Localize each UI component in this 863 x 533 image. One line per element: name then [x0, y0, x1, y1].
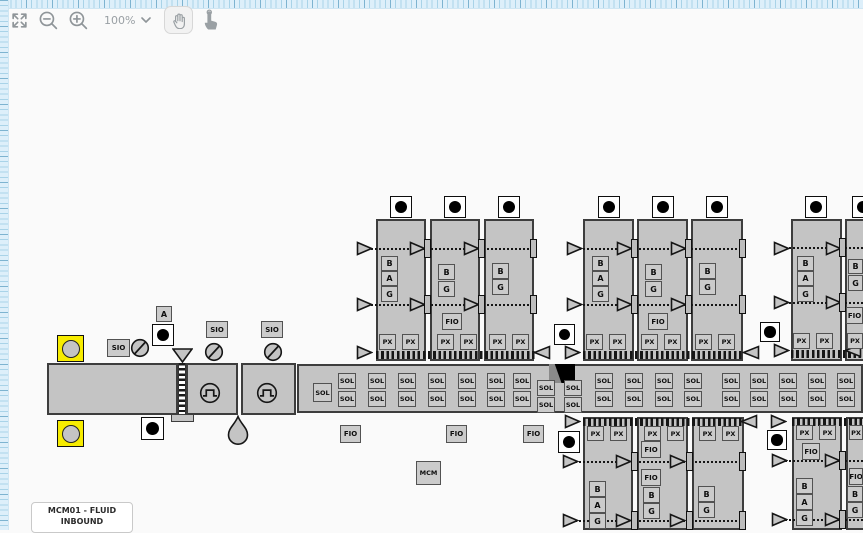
- sol-box[interactable]: SOL: [398, 373, 416, 389]
- pipe-flange: [739, 511, 746, 530]
- flow-line-dense: [376, 351, 535, 359]
- zoom-level-value: 100%: [104, 14, 135, 27]
- b-box[interactable]: B: [699, 263, 716, 279]
- module-title-line2: INBOUND: [36, 517, 128, 528]
- manual-valve[interactable]: [130, 338, 150, 358]
- flow-arrow-left[interactable]: [742, 345, 760, 360]
- flow-arrow-left[interactable]: [740, 414, 758, 429]
- zoom-out-button[interactable]: [38, 10, 59, 31]
- flow-arrow-right[interactable]: [356, 297, 373, 312]
- zoom-in-icon: [68, 10, 89, 31]
- alarm-indicator[interactable]: [57, 420, 84, 447]
- sol-box[interactable]: SOL: [513, 391, 531, 407]
- indicator-lamp[interactable]: [706, 196, 728, 218]
- expand-arrows-icon: [10, 11, 29, 30]
- fio-box[interactable]: FIO: [641, 441, 661, 458]
- lamp-dot-icon: [657, 201, 669, 213]
- b-box[interactable]: B: [848, 259, 863, 274]
- pointer-finger-icon: [202, 9, 219, 31]
- fio-box[interactable]: FIO: [523, 425, 544, 443]
- flow-arrow-right[interactable]: [615, 513, 632, 528]
- flow-arrow-right[interactable]: [771, 512, 788, 527]
- lamp-dot-icon: [503, 201, 515, 213]
- indicator-lamp[interactable]: [558, 431, 580, 453]
- lamp-dot-icon: [449, 201, 461, 213]
- lamp-dot-icon: [146, 422, 159, 435]
- module-title-line1: MCM01 - FLUID: [36, 506, 128, 517]
- lamp-circle-icon: [62, 340, 80, 358]
- pipe-flange: [739, 239, 746, 258]
- flow-line: [360, 248, 532, 250]
- px-box[interactable]: PX: [796, 425, 813, 440]
- flow-arrow-left[interactable]: [533, 345, 551, 360]
- pipe-flange: [739, 452, 746, 471]
- fio-box[interactable]: FIO: [641, 469, 661, 486]
- flow-arrow-right[interactable]: [770, 414, 787, 429]
- sol-box[interactable]: SOL: [428, 391, 446, 407]
- sol-box[interactable]: SOL: [428, 373, 446, 389]
- flow-line: [360, 304, 532, 306]
- px-box[interactable]: PX: [667, 426, 684, 441]
- sol-box[interactable]: SOL: [750, 391, 768, 407]
- px-box[interactable]: PX: [379, 334, 396, 350]
- lamp-dot-icon: [810, 201, 822, 213]
- sol-box[interactable]: SOL: [513, 373, 531, 389]
- indicator-lamp[interactable]: [152, 324, 174, 346]
- sol-box[interactable]: SOL: [808, 373, 826, 389]
- lamp-dot-icon: [395, 201, 407, 213]
- indicator-lamp[interactable]: [760, 322, 780, 342]
- pipe-flange: [631, 452, 638, 471]
- sol-box[interactable]: SOL: [837, 391, 855, 407]
- sol-box[interactable]: SOL: [458, 391, 476, 407]
- flow-arrow-right[interactable]: [356, 241, 373, 256]
- g-box[interactable]: G: [645, 281, 662, 297]
- b-box[interactable]: B: [592, 256, 609, 271]
- pipe-flange: [478, 295, 485, 314]
- sol-box[interactable]: SOL: [722, 391, 740, 407]
- flow-line: [568, 248, 741, 250]
- g-box[interactable]: G: [589, 513, 606, 529]
- flow-line: [566, 461, 741, 463]
- px-box[interactable]: PX: [722, 426, 739, 441]
- lamp-dot-icon: [559, 329, 571, 341]
- lamp-dot-icon: [603, 201, 615, 213]
- a-box[interactable]: A: [156, 306, 172, 322]
- lamp-dot-icon: [711, 201, 723, 213]
- fio-box[interactable]: FIO: [340, 425, 361, 443]
- pipe-flange: [839, 238, 846, 257]
- flow-arrow-right[interactable]: [669, 513, 686, 528]
- a-box[interactable]: A: [381, 271, 398, 286]
- px-box[interactable]: PX: [586, 334, 603, 350]
- g-box[interactable]: G: [643, 503, 660, 519]
- g-box[interactable]: G: [492, 279, 509, 295]
- diagram-canvas[interactable]: SIOSIOSIOAFIOFIOFIOMCMBAGPXPXBGFIOPXPXBG…: [0, 0, 863, 530]
- manual-valve[interactable]: [204, 342, 224, 362]
- pipe-flange: [839, 510, 846, 529]
- g-box[interactable]: G: [698, 502, 715, 518]
- fio-box[interactable]: FIO: [446, 425, 467, 443]
- indicator-lamp[interactable]: [141, 417, 164, 440]
- g-box[interactable]: G: [592, 286, 609, 302]
- hand-icon: [171, 12, 187, 29]
- sio-box[interactable]: SIO: [261, 321, 283, 338]
- indicator-lamp[interactable]: [805, 196, 827, 218]
- sol-box[interactable]: SOL: [313, 383, 332, 402]
- px-box[interactable]: PX: [437, 334, 454, 350]
- sol-box[interactable]: SOL: [808, 391, 826, 407]
- px-box[interactable]: PX: [512, 334, 529, 350]
- px-box[interactable]: PX: [718, 334, 735, 350]
- b-box[interactable]: B: [847, 486, 863, 502]
- indicator-lamp[interactable]: [390, 196, 412, 218]
- b-box[interactable]: B: [698, 486, 715, 502]
- indicator-lamp[interactable]: [598, 196, 620, 218]
- sol-box[interactable]: SOL: [487, 373, 505, 389]
- sol-box[interactable]: SOL: [564, 380, 582, 396]
- pipe-flange: [530, 239, 537, 258]
- inbound-tank[interactable]: [47, 363, 178, 415]
- gate-zipper: [178, 363, 186, 416]
- lamp-dot-icon: [563, 436, 575, 448]
- flow-arrow-right[interactable]: [773, 295, 790, 310]
- sol-box[interactable]: SOL: [338, 391, 356, 407]
- sol-box[interactable]: SOL: [487, 391, 505, 407]
- px-box[interactable]: PX: [816, 333, 833, 349]
- sol-box[interactable]: SOL: [750, 373, 768, 389]
- sol-box[interactable]: SOL: [779, 373, 797, 389]
- pump-symbol[interactable]: [199, 382, 221, 404]
- px-box[interactable]: PX: [664, 334, 681, 350]
- lamp-dot-icon: [857, 201, 863, 213]
- indicator-lamp[interactable]: [852, 196, 863, 218]
- flow-arrow-right[interactable]: [562, 454, 579, 469]
- zoom-out-icon: [38, 10, 59, 31]
- sol-box[interactable]: SOL: [595, 373, 613, 389]
- px-box[interactable]: PX: [699, 426, 716, 441]
- g-box[interactable]: G: [796, 510, 813, 526]
- b-box[interactable]: B: [492, 263, 509, 279]
- sol-box[interactable]: SOL: [684, 391, 702, 407]
- g-box[interactable]: G: [848, 275, 863, 291]
- a-box[interactable]: A: [589, 497, 606, 513]
- canvas-toolbar: 100%: [10, 6, 219, 34]
- pipe-flange: [631, 239, 638, 258]
- g-box[interactable]: G: [381, 286, 398, 302]
- px-box[interactable]: PX: [587, 426, 604, 441]
- mcm-box[interactable]: MCM: [416, 461, 441, 485]
- sol-box[interactable]: SOL: [655, 373, 673, 389]
- select-tool-button[interactable]: [202, 9, 219, 31]
- fit-view-button[interactable]: [10, 11, 29, 30]
- px-box[interactable]: PX: [609, 334, 626, 350]
- b-box[interactable]: B: [797, 256, 814, 271]
- flow-line: [568, 304, 741, 306]
- pipe-flange: [739, 295, 746, 314]
- g-box[interactable]: G: [438, 281, 455, 297]
- sol-box[interactable]: SOL: [537, 397, 555, 413]
- pipe-flange: [839, 451, 846, 470]
- sol-box[interactable]: SOL: [338, 373, 356, 389]
- sol-box[interactable]: SOL: [595, 391, 613, 407]
- sio-box[interactable]: SIO: [206, 321, 228, 338]
- px-box[interactable]: PX: [793, 333, 810, 349]
- pipe-flange: [424, 295, 431, 314]
- pipe-flange: [631, 295, 638, 314]
- sol-box[interactable]: SOL: [537, 380, 555, 396]
- module-title-note[interactable]: MCM01 - FLUID INBOUND: [31, 502, 133, 533]
- lamp-dot-icon: [764, 326, 775, 337]
- indicator-lamp[interactable]: [652, 196, 674, 218]
- px-box[interactable]: PX: [644, 426, 661, 441]
- gate-plate: [171, 414, 194, 422]
- sol-box[interactable]: SOL: [368, 373, 386, 389]
- fio-box[interactable]: FIO: [802, 443, 820, 460]
- fio-box[interactable]: FIO: [442, 313, 462, 330]
- indicator-lamp[interactable]: [498, 196, 520, 218]
- b-box[interactable]: B: [589, 481, 606, 497]
- lamp-circle-icon: [62, 425, 80, 443]
- pipe-flange: [530, 295, 537, 314]
- flow-arrow-right[interactable]: [773, 241, 790, 256]
- sio-box[interactable]: SIO: [107, 339, 130, 357]
- px-box[interactable]: PX: [641, 334, 658, 350]
- pipe-flange: [839, 293, 846, 312]
- sol-box[interactable]: SOL: [837, 373, 855, 389]
- indicator-lamp[interactable]: [554, 324, 575, 345]
- pan-tool-button[interactable]: [164, 6, 193, 34]
- b-box[interactable]: B: [643, 487, 660, 503]
- pipe-flange: [424, 239, 431, 258]
- sol-box[interactable]: SOL: [779, 391, 797, 407]
- lamp-dot-icon: [771, 434, 782, 445]
- zoom-level-select[interactable]: 100%: [104, 14, 151, 27]
- alarm-indicator[interactable]: [57, 335, 84, 362]
- flow-line: [776, 519, 863, 521]
- flow-arrow-right[interactable]: [615, 454, 632, 469]
- flow-arrow-right[interactable]: [566, 297, 583, 312]
- fio-box[interactable]: FIO: [849, 468, 863, 485]
- pipe-flange: [686, 511, 693, 530]
- b-box[interactable]: B: [438, 264, 455, 280]
- funnel[interactable]: [172, 348, 193, 363]
- pipe-flange: [631, 511, 638, 530]
- zoom-in-button[interactable]: [68, 10, 89, 31]
- flow-arrow-right[interactable]: [566, 241, 583, 256]
- a-box[interactable]: A: [797, 271, 814, 286]
- g-box[interactable]: G: [699, 279, 716, 295]
- manual-valve[interactable]: [263, 342, 283, 362]
- flow-line-dense: [583, 351, 744, 359]
- chevron-down-icon: [141, 17, 151, 24]
- a-box[interactable]: A: [796, 494, 813, 510]
- sol-box[interactable]: SOL: [398, 391, 416, 407]
- pipe-flange: [686, 452, 693, 471]
- b-box[interactable]: B: [645, 264, 662, 280]
- pipe-flange: [478, 239, 485, 258]
- flow-arrow-right[interactable]: [773, 343, 790, 358]
- px-box[interactable]: PX: [610, 426, 627, 441]
- fio-box[interactable]: FIO: [648, 313, 668, 330]
- px-box[interactable]: PX: [460, 334, 477, 350]
- flow-line: [776, 460, 863, 462]
- g-box[interactable]: G: [797, 286, 814, 302]
- fio-box[interactable]: FIO: [846, 307, 863, 324]
- sol-box[interactable]: SOL: [684, 373, 702, 389]
- a-box[interactable]: A: [592, 271, 609, 286]
- flow-arrow-right[interactable]: [356, 345, 373, 360]
- sol-box[interactable]: SOL: [564, 397, 582, 413]
- b-box[interactable]: B: [796, 478, 813, 494]
- droplet[interactable]: [227, 415, 249, 446]
- px-box[interactable]: PX: [695, 334, 712, 350]
- px-box[interactable]: PX: [849, 425, 863, 440]
- px-box[interactable]: PX: [402, 334, 419, 350]
- sol-box[interactable]: SOL: [625, 373, 643, 389]
- flow-arrow-right[interactable]: [564, 345, 581, 360]
- lamp-dot-icon: [157, 329, 169, 341]
- b-box[interactable]: B: [381, 256, 398, 271]
- sol-box[interactable]: SOL: [368, 391, 386, 407]
- flow-arrow-right[interactable]: [771, 453, 788, 468]
- flow-arrow-right[interactable]: [562, 513, 579, 528]
- px-box[interactable]: PX: [819, 425, 836, 440]
- sol-box[interactable]: SOL: [722, 373, 740, 389]
- flow-arrow-right[interactable]: [669, 454, 686, 469]
- g-box[interactable]: G: [847, 502, 863, 518]
- pump-symbol[interactable]: [256, 382, 278, 404]
- pipe-flange: [685, 239, 692, 258]
- sol-box[interactable]: SOL: [625, 391, 643, 407]
- flow-arrow-right[interactable]: [564, 414, 581, 429]
- pipe-flange: [685, 295, 692, 314]
- indicator-lamp[interactable]: [444, 196, 466, 218]
- px-box[interactable]: PX: [489, 334, 506, 350]
- sol-box[interactable]: SOL: [458, 373, 476, 389]
- px-box[interactable]: PX: [847, 333, 863, 349]
- sol-box[interactable]: SOL: [655, 391, 673, 407]
- flow-line-dense: [583, 418, 743, 426]
- indicator-lamp[interactable]: [767, 430, 787, 450]
